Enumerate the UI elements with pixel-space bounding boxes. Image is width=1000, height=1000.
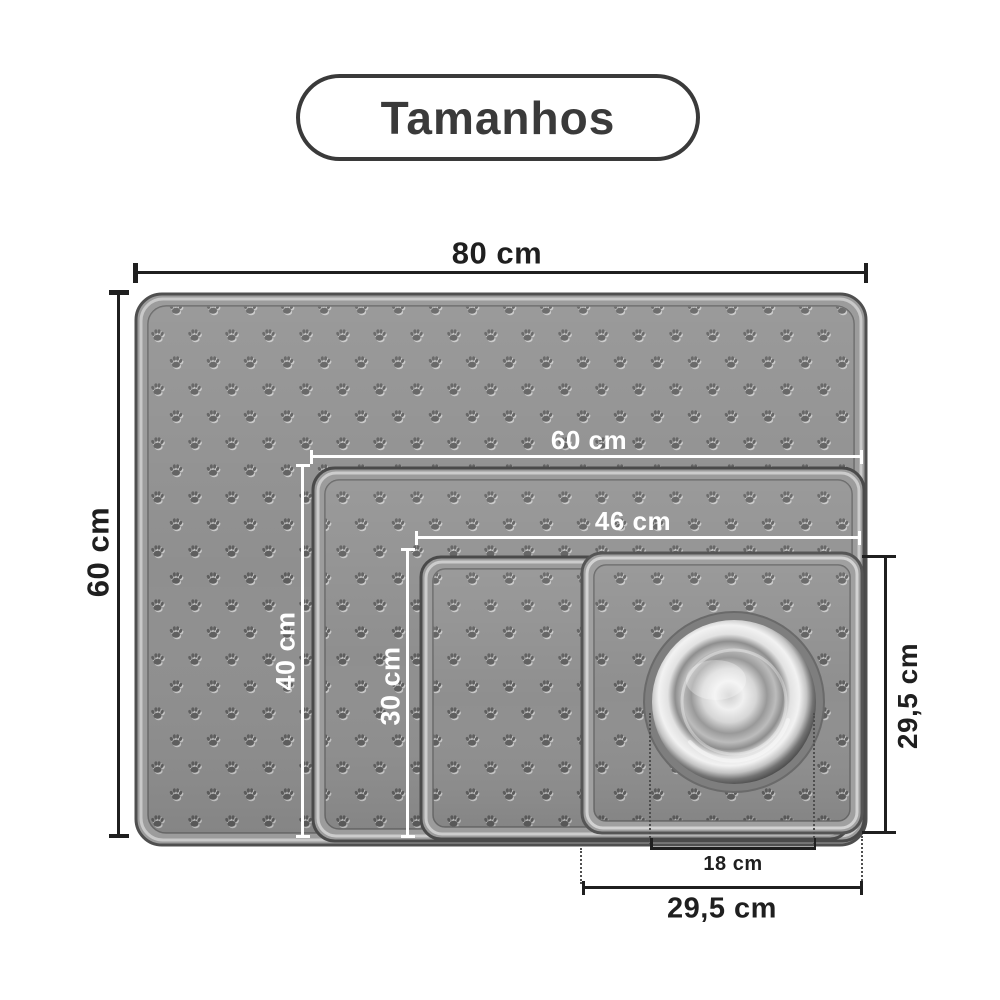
extension-dotted-bowl-left	[649, 713, 651, 845]
dim-label-mat-l-width: 60 cm	[551, 427, 627, 453]
dim-label-mat-xl-width: 80 cm	[452, 238, 542, 269]
extension-dotted-right	[861, 836, 863, 884]
dim-line-bowl-diameter	[650, 847, 816, 850]
dim-label-mat-l-height: 40 cm	[273, 611, 300, 690]
dim-line-mat-s-height	[884, 555, 887, 834]
dim-label-mat-s-height: 29,5 cm	[894, 643, 922, 749]
dim-line-mat-xl-width	[133, 271, 868, 274]
dim-label-mat-xl-height: 60 cm	[83, 507, 114, 597]
dim-label-mat-m-width: 46 cm	[595, 508, 671, 534]
dim-line-mat-m-height	[406, 548, 409, 838]
dim-line-mat-xl-height	[117, 290, 120, 838]
extension-dotted-bottom-left	[580, 848, 582, 884]
dim-label-mat-m-height: 30 cm	[378, 646, 405, 725]
dim-label-bowl-diameter: 18 cm	[703, 854, 762, 874]
food-bowl	[644, 612, 824, 792]
dim-line-mat-m-width	[415, 536, 861, 539]
dim-line-mat-l-height	[301, 464, 304, 838]
dim-line-mat-s-width	[582, 886, 863, 889]
dim-label-mat-s-width: 29,5 cm	[667, 895, 777, 924]
size-infographic: Tamanhos	[0, 0, 1000, 1000]
mats-illustration	[0, 0, 1000, 1000]
dim-line-mat-l-width	[310, 455, 863, 458]
extension-dotted-bowl-right	[813, 713, 815, 845]
